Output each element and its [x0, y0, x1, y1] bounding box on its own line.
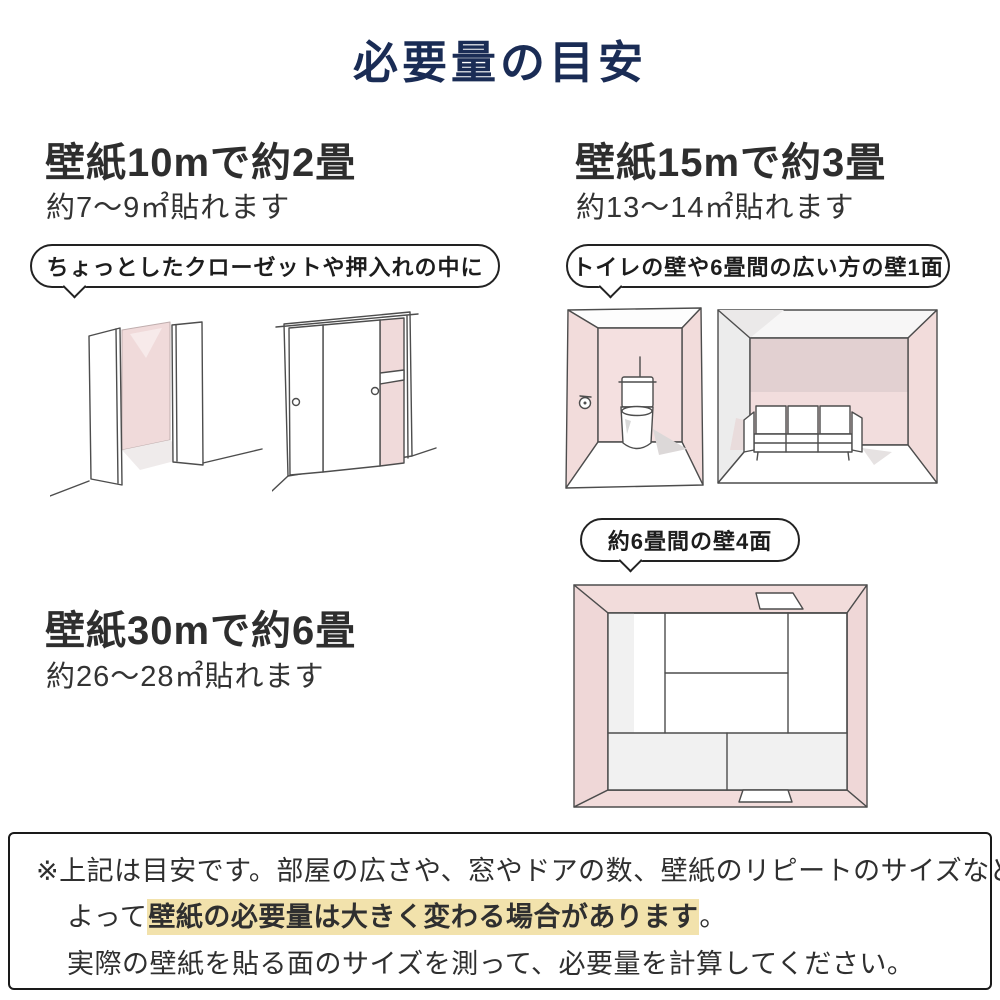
section-15m-subheading: 約13〜14㎡貼れます — [576, 184, 855, 226]
section-10m-bubble: ちょっとしたクローゼットや押入れの中に — [30, 244, 500, 288]
section-10m-subheading: 約7〜9㎡貼れます — [46, 184, 290, 226]
sliding-closet-illustration — [272, 298, 467, 533]
section-10m-bubble-label: ちょっとしたクローゼットや押入れの中に — [46, 250, 483, 282]
section-15m-bubble: トイレの壁や6畳間の広い方の壁1面 — [566, 244, 950, 288]
note-box: ※上記は目安です。部屋の広さや、窓やドアの数、壁紙のリピートのサイズなどに よっ… — [8, 832, 992, 990]
note-highlight: 壁紙の必要量は大きく変わる場合があります — [147, 899, 699, 935]
closet-interior-icon — [380, 318, 404, 466]
sofa-icon — [744, 406, 862, 460]
section-30m-subheading: 約26〜28㎡貼れます — [46, 653, 325, 695]
section-30m-heading: 壁紙30mで約6畳 — [45, 598, 356, 656]
sliding-door-right-icon — [323, 320, 380, 472]
section-15m-heading: 壁紙15mで約3畳 — [575, 130, 886, 188]
note-line-2: よって壁紙の必要量は大きく変わる場合があります。 — [36, 894, 964, 940]
wallpaper-quantity-infographic: 必要量の目安 壁紙10mで約2畳 約7〜9㎡貼れます ちょっとしたクローゼットや… — [0, 0, 1000, 1000]
section-15m-bubble-label: トイレの壁や6畳間の広い方の壁1面 — [572, 250, 943, 282]
room-opening-bottom-icon — [739, 790, 792, 802]
sofa-room-illustration — [714, 300, 938, 484]
note-line-2-prefix: よって — [67, 902, 147, 932]
note-line-1: ※上記は目安です。部屋の広さや、窓やドアの数、壁紙のリピートのサイズなどに — [36, 848, 964, 894]
toilet-room-illustration — [563, 303, 711, 489]
page-title: 必要量の目安 — [0, 26, 1000, 91]
tatami-room-illustration — [570, 583, 868, 811]
note-line-3: 実際の壁紙を貼る面のサイズを測って、必要量を計算してください。 — [36, 941, 964, 987]
note-line-2-suffix: 。 — [699, 902, 727, 932]
open-closet-illustration — [50, 300, 265, 535]
section-10m-heading: 壁紙10mで約2畳 — [45, 130, 356, 188]
section-30m-bubble: 約6畳間の壁4面 — [580, 518, 800, 562]
